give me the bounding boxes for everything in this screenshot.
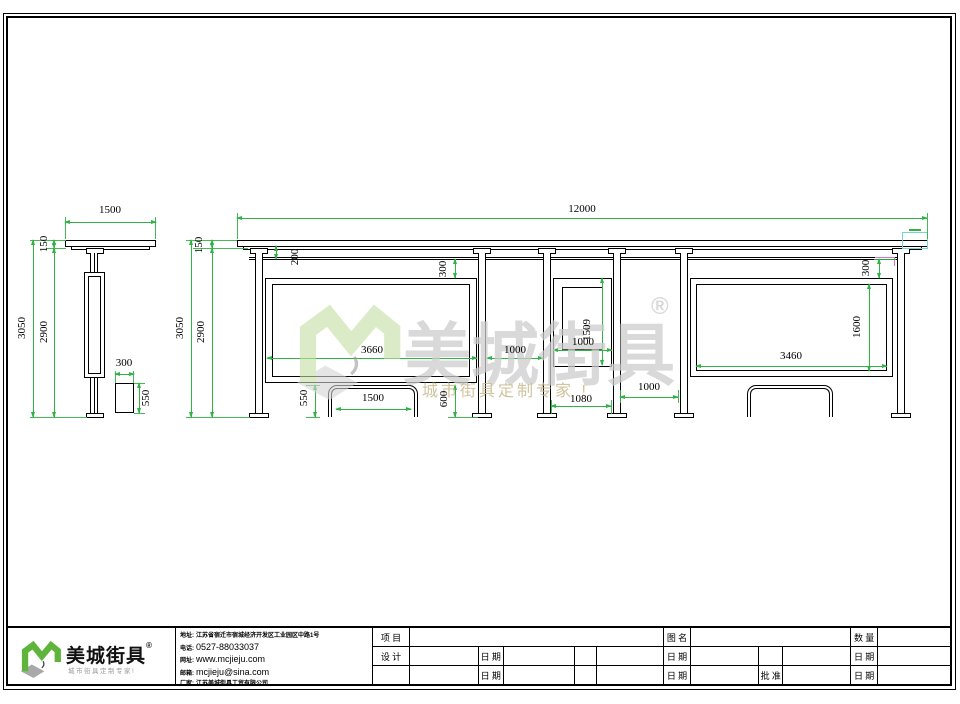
front-column-1 <box>255 253 263 413</box>
front-column-3-foot <box>537 413 557 418</box>
dim-line-front-panel1-width <box>267 358 477 359</box>
front-column-6 <box>897 253 905 413</box>
titleblock-date-value <box>691 666 759 684</box>
contact-phone: 电话:0527-88033037 <box>180 642 368 655</box>
dim-label-front-panel1-width: 3660 <box>342 344 402 358</box>
contact-email-value: mcjieju@sina.com <box>196 667 269 678</box>
dim-line-side-bin-width <box>115 374 134 375</box>
titleblock-cell <box>597 666 664 684</box>
titleblock-cell <box>575 666 597 684</box>
detail-highlight-box <box>902 232 928 249</box>
dim-line-front-roof-to-rail <box>276 246 277 259</box>
titleblock-date-value <box>504 647 575 666</box>
dim-line-side-total-height <box>33 240 34 417</box>
contact-company-value: 江苏美城街具工贸有限公司 <box>196 679 268 690</box>
dim-label-front-panel2-height: 1509 <box>581 300 595 360</box>
contact-company: 厂家:江苏美城街具工贸有限公司 <box>180 679 368 690</box>
dim-line-front-column-height <box>212 248 213 417</box>
dim-label-side-roof-thickness: 150 <box>38 214 52 274</box>
front-column-5 <box>680 253 688 413</box>
dim-line-front-bench-width <box>336 409 411 410</box>
dim-label-front-panel-bottom-clearance: 600 <box>438 369 452 429</box>
titleblock-quantity-value <box>878 628 952 647</box>
titleblock-cell <box>575 647 597 666</box>
front-bench-2 <box>747 385 833 417</box>
contact-website-label: 网址: <box>180 656 194 667</box>
dim-label-front-total-width: 12000 <box>552 203 612 217</box>
dim-label-front-rail-to-panel-right: 300 <box>860 238 874 298</box>
contact-phone-value: 0527-88033037 <box>196 642 259 653</box>
titleblock-drawing-name-label: 图 名 <box>664 628 692 647</box>
ext-line <box>30 417 87 418</box>
dim-line-front-rail-to-panel-left <box>455 259 456 278</box>
dim-line-front-bench-height <box>315 385 316 417</box>
dim-label-front-rail-to-panel-left: 300 <box>437 239 451 299</box>
titleblock-project-label: 项 目 <box>373 628 410 647</box>
dim-label-side-column-height: 2900 <box>38 302 52 362</box>
company-registered-icon: ® <box>146 641 153 650</box>
side-trash-bin <box>115 383 134 413</box>
contact-email-label: 邮箱: <box>180 669 194 680</box>
front-roof-lip <box>243 246 922 250</box>
contact-phone-label: 电话: <box>180 644 194 655</box>
contact-website-value: www.mcjieju.com <box>196 654 265 665</box>
side-column-foot <box>86 413 104 418</box>
contact-address-value: 江苏省宿迁市宿城经济开发区工业园区中路1号 <box>196 631 319 642</box>
dim-line-side-column-height <box>54 248 55 417</box>
titleblock-quantity-label: 数 量 <box>851 628 878 647</box>
titleblock-date-label: 日 期 <box>851 666 878 684</box>
titleblock-row-1: 项 目 图 名 数 量 <box>373 628 952 647</box>
titleblock-date-label: 日 期 <box>664 666 692 684</box>
titleblock-cell <box>373 666 410 684</box>
dim-line-front-total-width <box>237 218 927 219</box>
titleblock-cell <box>759 647 783 666</box>
dim-label-front-gap-col2-col3: 1000 <box>485 344 545 358</box>
dim-line-front-gap-col2-col3 <box>487 358 543 359</box>
front-column-6-foot <box>891 413 911 418</box>
titleblock-date-value <box>504 666 575 684</box>
dim-label-front-panel3-height: 1600 <box>851 297 865 357</box>
company-brand: 美城街具® <box>66 641 153 668</box>
side-roof-lip <box>71 246 150 250</box>
titleblock-date-value <box>878 666 952 684</box>
titleblock-divider-1 <box>175 628 176 684</box>
titleblock-cell <box>410 666 479 684</box>
titleblock-cell <box>597 647 664 666</box>
front-column-3 <box>543 253 551 413</box>
titleblock-date-label: 日 期 <box>479 647 504 666</box>
dim-label-front-roof-to-rail: 200 <box>289 227 303 287</box>
dim-line-front-total-height <box>191 240 192 417</box>
titleblock-row-2: 设 计 日 期 日 期 日 期 <box>373 647 952 666</box>
titleblock-project-value <box>410 628 664 647</box>
titleblock-designer-value <box>410 647 479 666</box>
dim-label-side-total-height: 3050 <box>16 298 30 358</box>
contact-info: 地址:江苏省宿迁市宿城经济开发区工业园区中路1号 电话:0527-8803303… <box>180 631 368 690</box>
dim-line-front-panel3-width <box>696 366 887 367</box>
dim-label-front-gap-col4-col5: 1000 <box>619 381 679 395</box>
ext-line <box>186 417 250 418</box>
company-brand-text: 美城街具 <box>66 646 146 667</box>
titleblock-date-value <box>878 647 952 666</box>
contact-email: 邮箱:mcjieju@sina.com <box>180 667 368 680</box>
dim-line-front-gap-col4-col5 <box>620 397 678 398</box>
dim-label-front-total-height: 3050 <box>174 298 188 358</box>
dim-line-front-rail-to-panel-right <box>879 259 880 278</box>
titleblock-approval-label: 批 准 <box>759 666 783 684</box>
dim-label-front-column-height: 2900 <box>195 302 209 362</box>
titleblock-date-label: 日 期 <box>851 647 878 666</box>
contact-address-label: 地址: <box>180 631 194 642</box>
company-logo-m-icon <box>18 636 64 678</box>
dim-label-front-panel2-span: 1080 <box>551 393 611 407</box>
dim-line-front-panel-bottom-clearance <box>455 385 456 417</box>
dim-label-side-roof-width: 1500 <box>80 204 140 218</box>
company-tagline: 城市街具定制专家! <box>68 665 135 675</box>
front-rail-top <box>249 257 901 258</box>
contact-website: 网址:www.mcjieju.com <box>180 654 368 667</box>
titleblock-drawing-name-value <box>691 628 851 647</box>
front-column-2 <box>478 253 486 413</box>
front-rail-bottom <box>249 259 901 260</box>
front-column-4-foot <box>607 413 627 418</box>
titleblock-approval-value <box>783 666 851 684</box>
contact-address: 地址:江苏省宿迁市宿城经济开发区工业园区中路1号 <box>180 631 368 642</box>
dim-label-front-bench-width: 1500 <box>343 392 403 406</box>
dim-label-side-bin-height: 550 <box>140 368 154 428</box>
front-column-5-foot <box>674 413 694 418</box>
front-bench-2-inner-line <box>750 388 830 417</box>
dim-line-side-roof-width <box>65 222 156 223</box>
titleblock-designer-label: 设 计 <box>373 647 410 666</box>
contact-company-label: 厂家: <box>180 679 194 690</box>
titleblock-date-label: 日 期 <box>479 666 504 684</box>
dim-label-front-bench-height: 550 <box>298 368 312 428</box>
titleblock-date-label: 日 期 <box>664 647 692 666</box>
titleblock-date-value <box>691 647 759 666</box>
dim-label-front-roof-thickness: 150 <box>193 215 207 275</box>
dim-label-front-panel3-width: 3460 <box>761 350 821 364</box>
dim-line-front-panel2-height <box>602 278 603 365</box>
titleblock-row-3: 日 期 日 期 批 准 日 期 <box>373 666 952 684</box>
detail-highlight-mark <box>909 229 921 231</box>
titleblock-cell <box>783 647 851 666</box>
front-column-1-foot <box>249 413 269 418</box>
titleblock-table: 项 目 图 名 数 量 设 计 日 期 日 期 日 期 日 期 <box>372 628 952 684</box>
cad-sheet: 1500 150 3050 2900 300 550 <box>0 0 960 704</box>
